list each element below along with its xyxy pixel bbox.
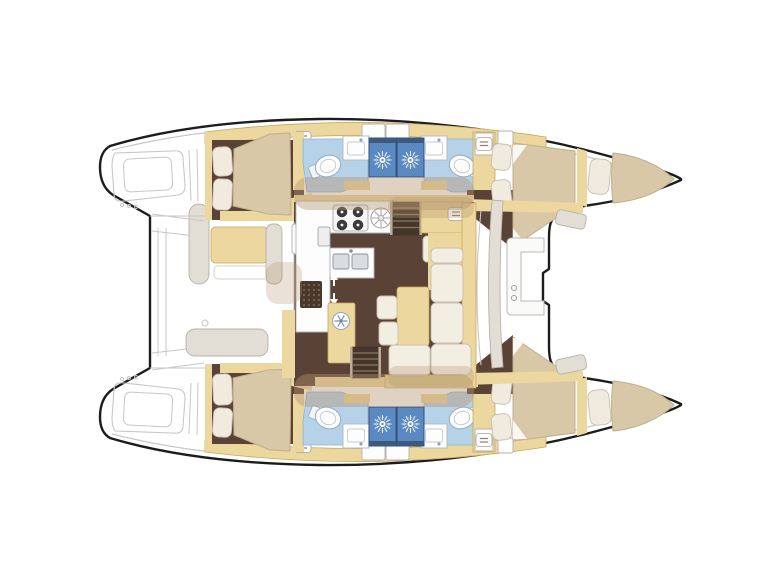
saloon <box>282 195 478 388</box>
fridge-vent-icon <box>333 313 350 330</box>
cockpit-bench <box>211 227 268 263</box>
floor-plan-canvas <box>0 0 782 586</box>
stool <box>379 322 398 345</box>
round-burner-icon <box>371 208 391 228</box>
catamaran-floor-plan <box>0 0 782 586</box>
cockpit-table <box>186 329 268 356</box>
stairs-to-starboard-hull <box>350 347 381 378</box>
stool <box>377 296 397 319</box>
entry-mat <box>300 281 322 308</box>
saloon-table <box>397 287 429 346</box>
galley-appliance <box>318 227 330 246</box>
